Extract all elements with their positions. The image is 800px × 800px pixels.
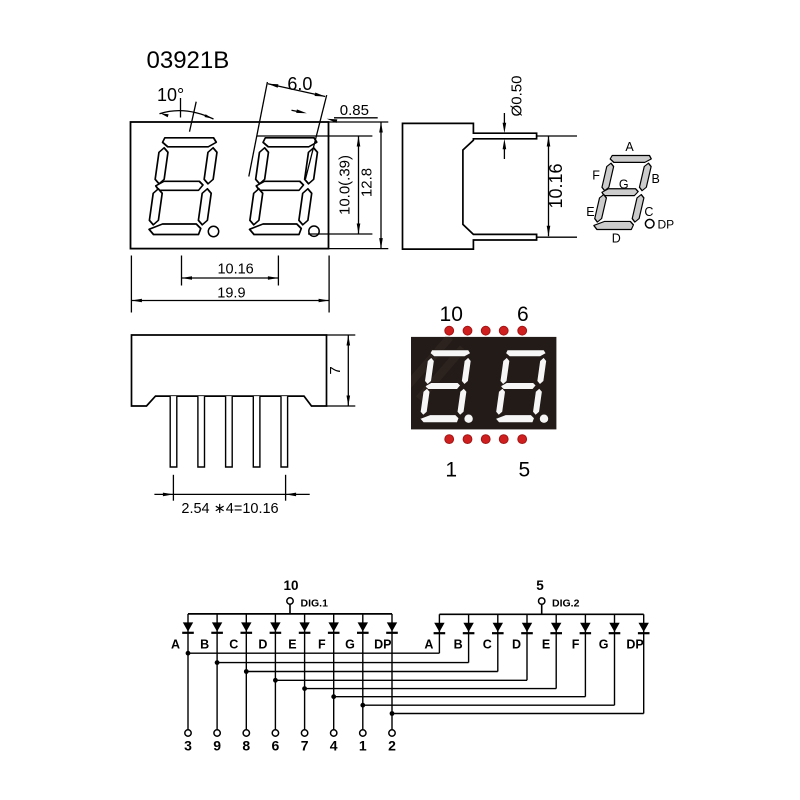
- svg-text:5: 5: [536, 578, 544, 593]
- svg-text:9: 9: [213, 738, 221, 754]
- svg-text:C: C: [644, 205, 653, 219]
- svg-text:6: 6: [272, 738, 280, 754]
- svg-text:C: C: [483, 638, 492, 652]
- svg-text:5: 5: [519, 458, 531, 481]
- svg-text:A: A: [171, 638, 180, 652]
- svg-text:10.0(.39): 10.0(.39): [337, 155, 354, 215]
- svg-text:F: F: [318, 638, 326, 652]
- svg-text:A: A: [625, 140, 634, 154]
- svg-text:10: 10: [440, 303, 463, 326]
- svg-text:DP: DP: [374, 638, 391, 652]
- svg-text:6: 6: [517, 303, 529, 326]
- svg-text:DP: DP: [658, 218, 675, 232]
- svg-text:8: 8: [242, 738, 250, 754]
- svg-text:DP: DP: [626, 638, 643, 652]
- svg-text:D: D: [512, 638, 521, 652]
- svg-text:C: C: [229, 638, 238, 652]
- svg-text:F: F: [572, 638, 580, 652]
- svg-text:D: D: [612, 232, 621, 246]
- svg-text:DIG.2: DIG.2: [552, 598, 580, 610]
- svg-text:0.85: 0.85: [340, 102, 369, 119]
- svg-text:12.8: 12.8: [359, 168, 376, 197]
- svg-text:B: B: [454, 638, 463, 652]
- svg-text:1: 1: [359, 738, 367, 754]
- svg-text:7: 7: [327, 366, 344, 374]
- svg-text:7: 7: [301, 738, 309, 754]
- svg-text:2.54 ∗4=10.16: 2.54 ∗4=10.16: [181, 501, 278, 517]
- svg-text:10: 10: [283, 578, 298, 593]
- svg-text:B: B: [200, 638, 209, 652]
- svg-text:10.16: 10.16: [217, 261, 253, 277]
- svg-text:D: D: [258, 638, 267, 652]
- svg-text:2: 2: [388, 738, 396, 754]
- svg-text:E: E: [586, 205, 594, 219]
- svg-text:E: E: [542, 638, 550, 652]
- svg-text:03921B: 03921B: [147, 47, 230, 74]
- svg-text:19.9: 19.9: [217, 286, 245, 302]
- svg-text:3: 3: [184, 738, 192, 754]
- svg-text:1: 1: [445, 458, 457, 481]
- svg-text:10.16: 10.16: [546, 163, 566, 208]
- svg-text:B: B: [652, 172, 660, 186]
- svg-text:F: F: [592, 169, 600, 183]
- svg-text:A: A: [424, 638, 433, 652]
- svg-text:E: E: [288, 638, 296, 652]
- svg-text:4: 4: [330, 738, 338, 754]
- svg-text:G: G: [599, 638, 609, 652]
- svg-text:DIG.1: DIG.1: [301, 598, 329, 610]
- svg-text:Ø0.50: Ø0.50: [509, 76, 526, 117]
- svg-text:G: G: [619, 178, 629, 192]
- svg-text:G: G: [345, 638, 355, 652]
